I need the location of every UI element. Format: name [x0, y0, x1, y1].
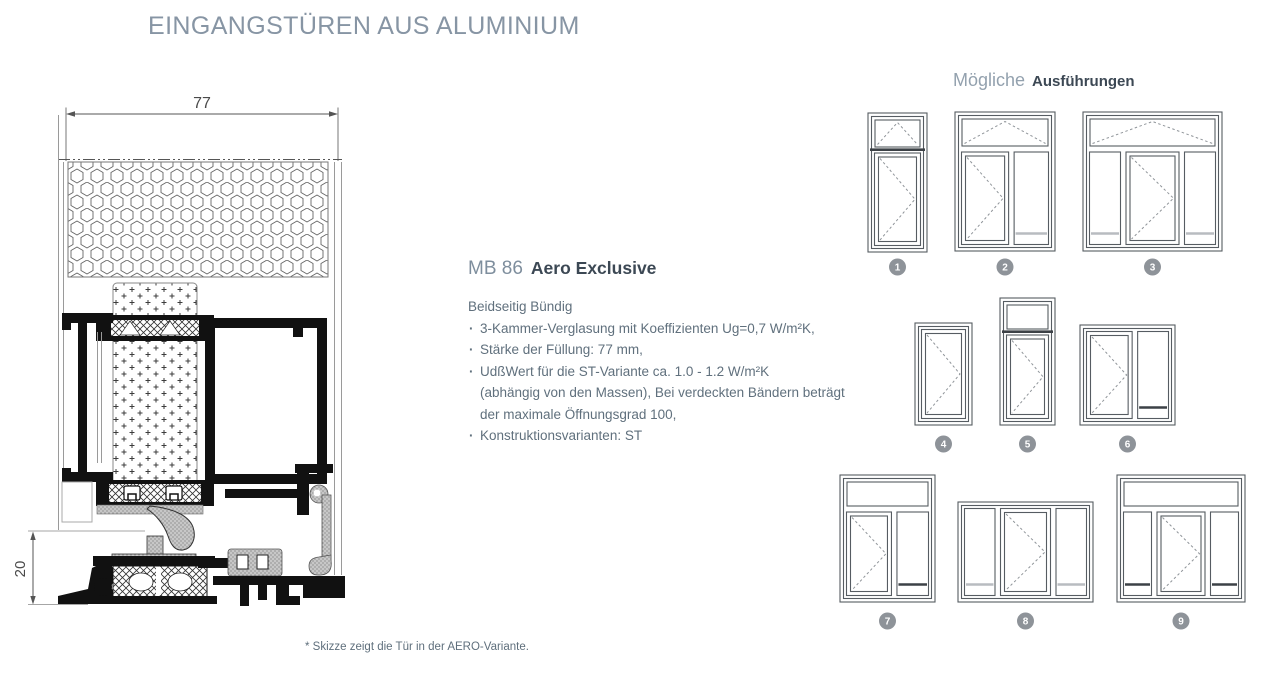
honeycomb-panel	[68, 162, 328, 277]
hook-gasket	[309, 485, 331, 575]
center-gasket	[112, 506, 196, 562]
door-variant-2: 2	[955, 112, 1055, 276]
cross-section-drawing: 77	[0, 0, 370, 648]
dim-height-label: 20	[12, 561, 29, 578]
feature-item: Konstruktionsvarianten: ST	[468, 425, 848, 447]
door-variant-8: 8	[958, 502, 1093, 630]
door-variant-5: 5	[1000, 298, 1055, 453]
variant-number: 2	[1002, 263, 1008, 274]
dimension-width-77: 77	[66, 95, 338, 161]
variant-number: 3	[1150, 263, 1156, 274]
dim-width-label: 77	[193, 95, 211, 112]
product-name: Aero Exclusive	[531, 258, 656, 279]
tilt-symbol	[965, 122, 1046, 144]
opening-direction-symbol	[1006, 514, 1045, 590]
drawing-footnote: * Skizze zeigt die Tür in der AERO-Varia…	[305, 641, 529, 653]
opening-direction-symbol	[927, 335, 960, 413]
feature-item: Stärke der Füllung: 77 mm,	[468, 339, 848, 361]
opening-direction-symbol	[967, 158, 1003, 240]
variants-heading-light: Mögliche	[953, 70, 1025, 91]
insulation-pad	[113, 283, 197, 318]
insulation-strip	[113, 318, 197, 482]
variant-number: 4	[941, 440, 947, 451]
opening-direction-symbol	[1092, 337, 1127, 413]
feature-list: 3-Kammer-Verglasung mit Koeffizienten Ug…	[468, 318, 848, 447]
variant-number: 9	[1178, 617, 1184, 628]
tilt-symbol	[1093, 122, 1213, 144]
door-variant-6: 6	[1080, 325, 1175, 453]
variant-number: 5	[1025, 440, 1031, 451]
opening-direction-symbol	[1012, 341, 1043, 414]
product-subtitle: Beidseitig Bündig	[468, 296, 848, 318]
opening-direction-symbol	[1132, 158, 1174, 240]
door-variant-9: 9	[1117, 475, 1245, 630]
thermal-break-top	[96, 315, 214, 341]
variant-number: 8	[1023, 617, 1029, 628]
door-variant-4: 4	[915, 323, 972, 453]
variants-heading-bold: Ausführungen	[1032, 73, 1135, 90]
variant-number: 7	[885, 617, 891, 628]
variant-number: 6	[1125, 440, 1131, 451]
opening-direction-symbol	[880, 159, 915, 241]
door-variant-7: 7	[840, 475, 935, 630]
opening-direction-symbol	[852, 518, 886, 591]
tilt-symbol	[878, 123, 918, 145]
door-variant-3: 3	[1083, 112, 1222, 276]
door-variants-diagram: 123456789	[820, 95, 1260, 640]
feature-item: 3-Kammer-Verglasung mit Koeffizienten Ug…	[468, 318, 848, 340]
product-info: MB 86 Aero Exclusive Beidseitig Bündig 3…	[468, 258, 848, 447]
product-heading: MB 86 Aero Exclusive	[468, 258, 848, 280]
product-code: MB 86	[468, 258, 523, 280]
hinge-face-lines	[98, 332, 102, 463]
variants-heading: Mögliche Ausführungen	[953, 70, 1135, 91]
variant-number: 1	[895, 263, 901, 274]
opening-direction-symbol	[1163, 518, 1200, 591]
feature-item: UdßWert für die ST-Variante ca. 1.0 - 1.…	[468, 361, 848, 426]
door-variant-1: 1	[868, 113, 927, 276]
